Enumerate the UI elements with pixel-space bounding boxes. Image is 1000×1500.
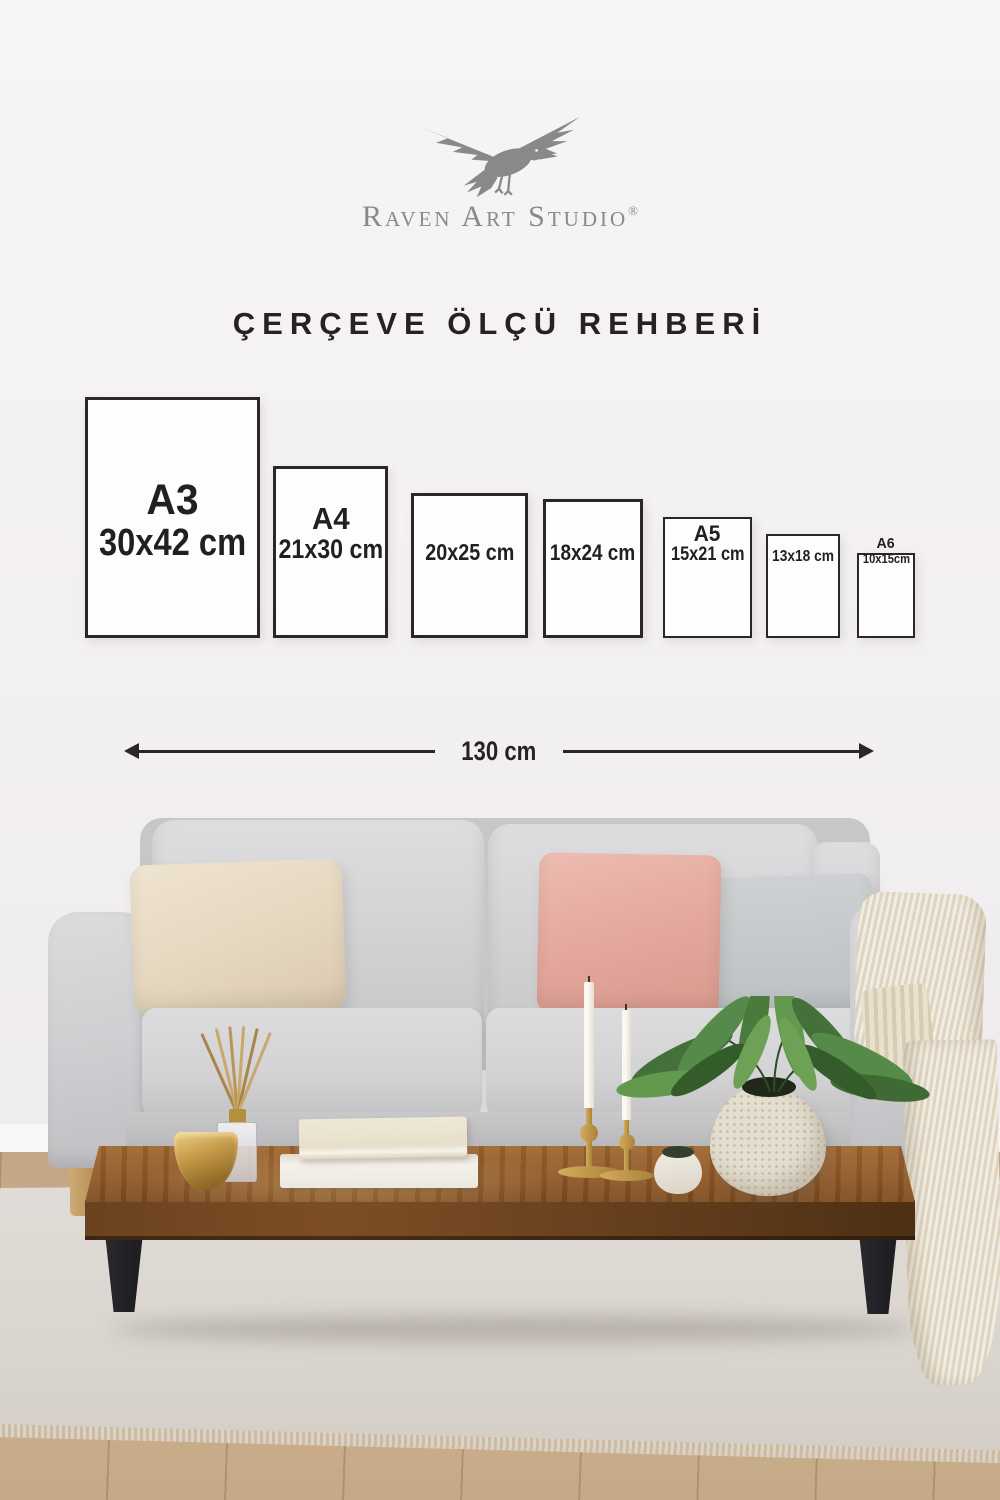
page-title: ÇERÇEVE ÖLÇÜ REHBERİ [0, 306, 1000, 342]
candlestick-base [600, 1170, 654, 1181]
sofa-width-arrow: 130 cm [124, 736, 874, 766]
frame-size: 21x30 cm [278, 535, 383, 565]
frame-size: 15x21 cm [671, 545, 745, 566]
frame-label: A6 [877, 536, 895, 552]
frame-size: 18x24 cm [550, 541, 635, 565]
size-frame: 18x24 cm [543, 499, 643, 638]
pink-pillow [537, 852, 722, 1015]
registered-mark: ® [628, 203, 638, 218]
sofa-width-label: 130 cm [457, 736, 542, 767]
table-front-edge [85, 1200, 915, 1240]
arrow-right-head-icon [859, 743, 874, 759]
poster: Raven Art Studio® ÇERÇEVE ÖLÇÜ REHBERİ A… [0, 0, 1000, 1500]
brand-name-text: Raven Art Studio [362, 200, 628, 233]
raven-bird-icon [393, 112, 608, 198]
green-plant [612, 996, 942, 1148]
raven-eye [535, 149, 538, 152]
book [299, 1117, 468, 1160]
frame-label: A3 [146, 478, 198, 523]
taper-candle [584, 982, 594, 1108]
frame-label: A4 [312, 503, 350, 536]
cream-pillow [129, 858, 346, 1015]
brand-logo: Raven Art Studio® [0, 112, 1000, 234]
arrow-line [563, 750, 860, 753]
frame-size: 30x42 cm [99, 523, 246, 565]
size-frame: A5 15x21 cm [663, 517, 752, 638]
brand-name: Raven Art Studio® [0, 200, 1000, 234]
size-frame: 20x25 cm [411, 493, 528, 638]
frame-label: A5 [694, 522, 721, 545]
candle-wick [588, 976, 590, 982]
sofa-seat-cushion [142, 1008, 482, 1120]
size-frame: A3 30x42 cm [85, 397, 260, 638]
frame-size: 20x25 cm [425, 540, 514, 565]
table-shadow [112, 1316, 918, 1342]
candlestick-knob [580, 1124, 598, 1142]
size-frame: 13x18 cm [766, 534, 840, 638]
arrow-left-head-icon [124, 743, 139, 759]
size-frame: A4 21x30 cm [273, 466, 388, 638]
frame-size: 13x18 cm [772, 548, 834, 566]
size-frame: A6 10x15cm [857, 553, 915, 638]
arrow-line [138, 750, 435, 753]
frame-size: 10x15cm [862, 552, 909, 566]
